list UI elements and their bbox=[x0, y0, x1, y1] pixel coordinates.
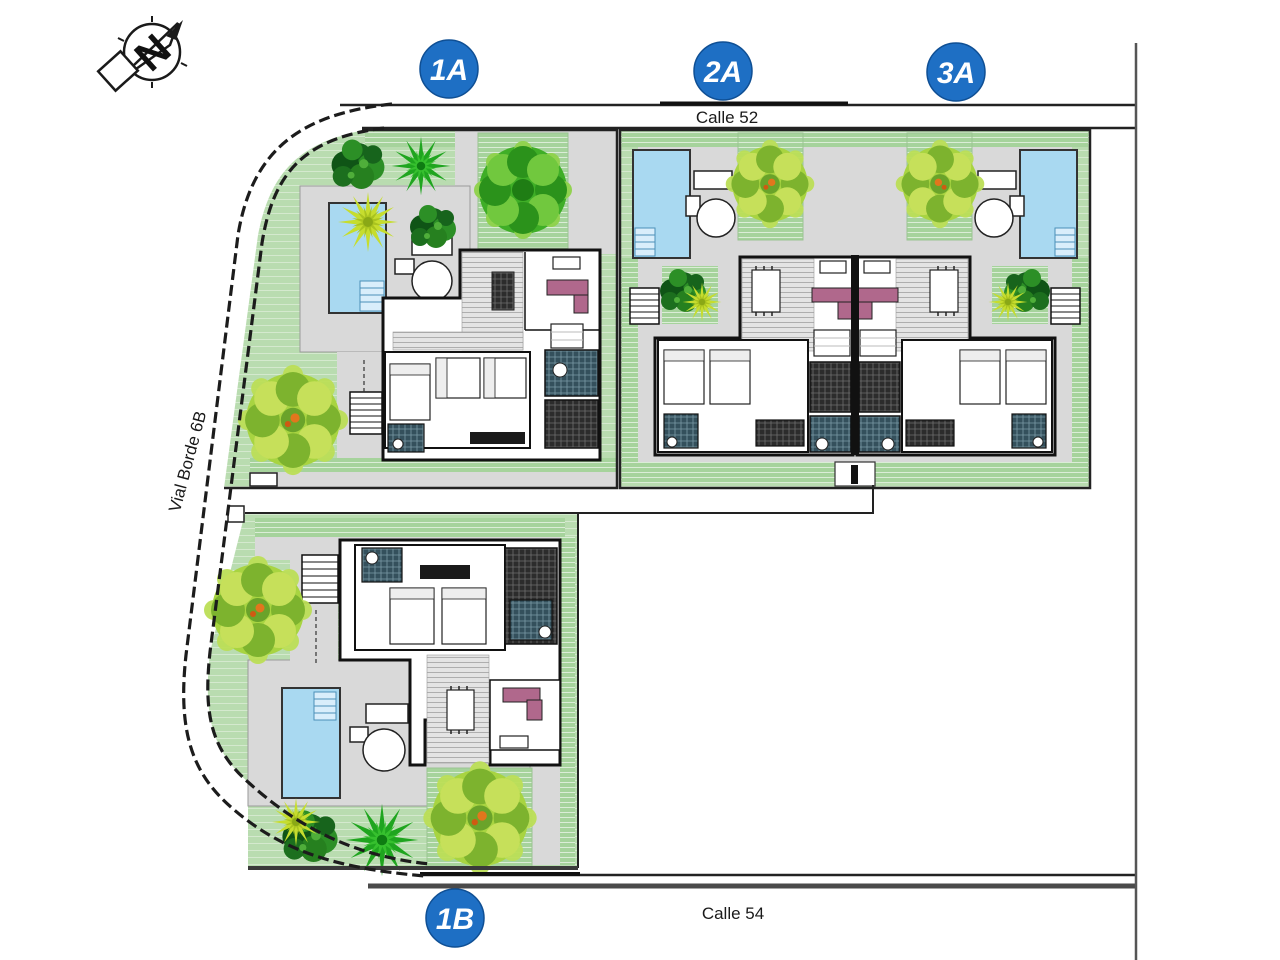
street-label-vial-borde: Vial Borde 6B bbox=[165, 409, 210, 514]
pool-1b bbox=[282, 688, 340, 798]
pool-2a bbox=[633, 150, 690, 258]
site-plan: Calle 52 Calle 54 Vial Borde 6B 1A 2A 3A… bbox=[0, 0, 1280, 960]
unit-badge-1b-label: 1B bbox=[436, 903, 474, 936]
garden-table bbox=[412, 261, 452, 301]
street-label-calle-54: Calle 54 bbox=[702, 904, 764, 923]
unit-badge-2a-label: 2A bbox=[703, 56, 742, 89]
tree bbox=[238, 365, 348, 475]
tree bbox=[726, 140, 815, 229]
unit-badge-1a[interactable]: 1A bbox=[420, 40, 478, 98]
garden-table bbox=[363, 729, 405, 771]
street-label-calle-52: Calle 52 bbox=[696, 108, 758, 127]
unit-badge-3a[interactable]: 3A bbox=[927, 43, 985, 101]
unit-badge-1b[interactable]: 1B bbox=[426, 889, 484, 947]
site-plan-drawing: Calle 52 Calle 54 Vial Borde 6B 1A 2A 3A… bbox=[0, 0, 1280, 960]
party-wall bbox=[851, 255, 859, 455]
north-arrow-icon: N bbox=[98, 16, 187, 91]
tree bbox=[423, 761, 536, 874]
road-calle-54 bbox=[368, 874, 1135, 886]
garden-table bbox=[697, 199, 735, 237]
tree bbox=[474, 141, 572, 239]
unit-badge-1a-label: 1A bbox=[430, 54, 468, 87]
unit-badge-3a-label: 3A bbox=[937, 57, 975, 90]
unit-badge-2a[interactable]: 2A bbox=[694, 42, 752, 100]
stairs bbox=[630, 288, 659, 324]
